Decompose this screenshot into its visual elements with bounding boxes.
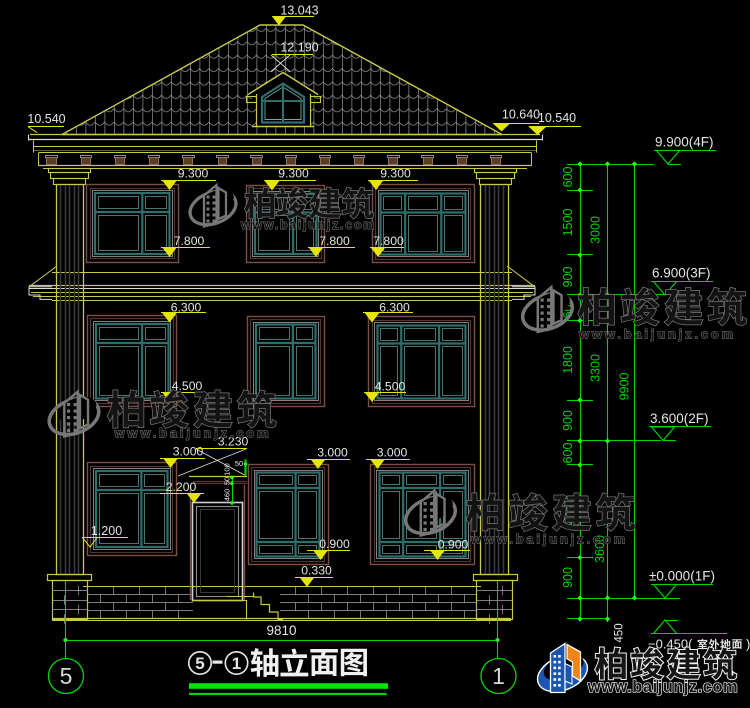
svg-text:±0.000(1F): ±0.000(1F) xyxy=(649,569,715,584)
svg-text:www.baijunjz.com: www.baijunjz.com xyxy=(587,678,738,696)
svg-text:600: 600 xyxy=(561,443,575,464)
svg-text:50: 50 xyxy=(223,477,232,485)
svg-text:1: 1 xyxy=(232,654,241,673)
svg-text:3.000: 3.000 xyxy=(377,446,408,460)
svg-text:9.300: 9.300 xyxy=(178,167,209,181)
svg-text:0.900: 0.900 xyxy=(438,538,469,552)
svg-text:0.330: 0.330 xyxy=(301,564,332,578)
svg-text:9810: 9810 xyxy=(266,623,296,638)
svg-text:www.baijunjz.com: www.baijunjz.com xyxy=(240,218,376,232)
svg-text:www.baijunjz.com: www.baijunjz.com xyxy=(470,532,628,547)
svg-text:7.800: 7.800 xyxy=(319,234,350,248)
svg-text:10.540: 10.540 xyxy=(27,112,65,126)
svg-text:3.000: 3.000 xyxy=(317,446,348,460)
svg-text:600: 600 xyxy=(561,167,575,188)
svg-text:9.300: 9.300 xyxy=(380,167,411,181)
svg-text:900: 900 xyxy=(561,567,575,588)
svg-text:100: 100 xyxy=(223,463,232,476)
svg-text:): ) xyxy=(746,637,750,652)
svg-text:12.190: 12.190 xyxy=(280,41,318,55)
svg-text:www.baijunjz.com: www.baijunjz.com xyxy=(114,426,272,441)
svg-text:www.baijunjz.com: www.baijunjz.com xyxy=(578,327,736,342)
svg-text:6.900(3F): 6.900(3F) xyxy=(652,266,711,281)
svg-text:50: 50 xyxy=(235,459,243,468)
svg-text:1800: 1800 xyxy=(561,346,575,374)
svg-text:5: 5 xyxy=(60,663,73,689)
svg-text:13.043: 13.043 xyxy=(280,4,318,18)
svg-text:10.640: 10.640 xyxy=(502,108,540,122)
svg-text:9.300: 9.300 xyxy=(278,167,309,181)
svg-text:7.800: 7.800 xyxy=(373,234,404,248)
svg-text:900: 900 xyxy=(561,410,575,431)
svg-text:3300: 3300 xyxy=(589,354,603,382)
svg-text:1500: 1500 xyxy=(561,209,575,237)
svg-text:7.800: 7.800 xyxy=(174,234,205,248)
svg-text:9.900(4F): 9.900(4F) xyxy=(655,135,714,150)
svg-text:3000: 3000 xyxy=(589,216,603,244)
svg-text:450: 450 xyxy=(614,623,626,642)
svg-text:5: 5 xyxy=(195,654,204,673)
svg-text:900: 900 xyxy=(561,267,575,288)
svg-text:10.540: 10.540 xyxy=(538,111,576,125)
svg-text:0.900: 0.900 xyxy=(319,537,350,551)
svg-text:3.000: 3.000 xyxy=(173,445,204,459)
svg-text:2.200: 2.200 xyxy=(166,480,197,494)
svg-text:4.500: 4.500 xyxy=(375,380,406,394)
svg-text:1.200: 1.200 xyxy=(91,524,122,538)
svg-text:460: 460 xyxy=(223,489,232,502)
svg-text:3.600(2F): 3.600(2F) xyxy=(650,411,709,426)
svg-text:1: 1 xyxy=(492,663,505,689)
svg-text:9900: 9900 xyxy=(618,373,632,401)
